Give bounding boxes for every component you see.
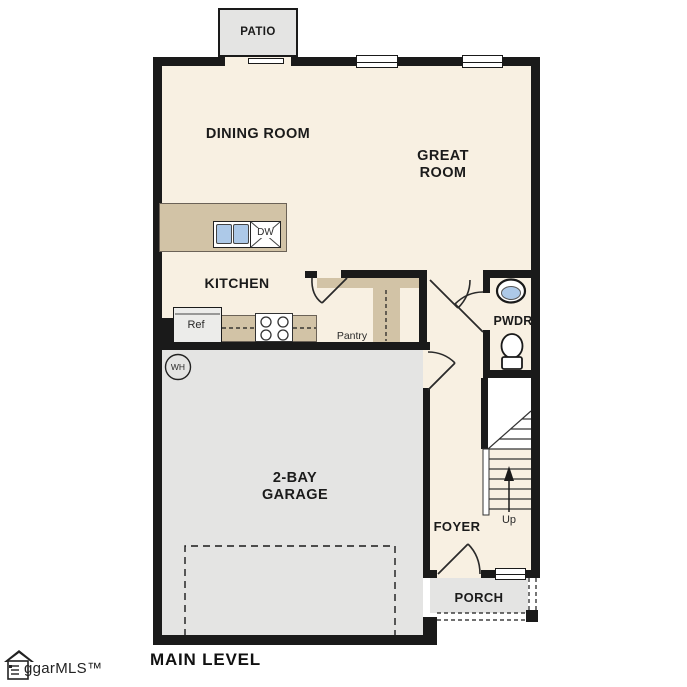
- range-box: [255, 313, 293, 342]
- wall-garage-porch-corner: [423, 617, 437, 643]
- room-label-kitchen: KITCHEN: [187, 275, 287, 292]
- wall-foyer-porch-b: [481, 570, 495, 578]
- plan-title: MAIN LEVEL: [150, 650, 261, 670]
- wall-foyer-porch-a: [423, 570, 437, 578]
- wall-garage-right: [423, 388, 430, 570]
- wall-foyer-porch-c: [526, 570, 540, 578]
- wall-pwdr-left-upper: [483, 278, 490, 293]
- fixture-label-wh: WH: [166, 363, 190, 372]
- window-dining: [356, 55, 398, 68]
- window-porch: [495, 568, 526, 580]
- patio-sliding-door: [248, 58, 284, 64]
- room-label-foyer: FOYER: [430, 519, 484, 534]
- wall-stairs-left: [481, 378, 488, 449]
- wall-left: [153, 57, 162, 645]
- wall-pantry-jamb: [305, 271, 317, 278]
- fixture-label-dw: DW: [252, 228, 279, 238]
- room-label-great: GREAT ROOM: [393, 148, 493, 182]
- wall-closet-right: [419, 278, 427, 342]
- window-mullion: [357, 62, 397, 63]
- room-label-pwdr: PWDR: [490, 314, 536, 329]
- wall-pantry-top: [341, 270, 427, 278]
- room-label-dining: DINING ROOM: [188, 126, 328, 143]
- wall-pwdr-bottom: [483, 370, 540, 378]
- wall-bottom-garage: [153, 635, 437, 645]
- floor-plan-canvas: PATIO DINING ROOM GREAT ROOM KITCHEN PWD…: [0, 0, 687, 687]
- pantry-shelf: [317, 278, 419, 288]
- room-label-patio: PATIO: [228, 26, 288, 40]
- sink-basin-left: [216, 224, 232, 244]
- porch-post: [526, 610, 538, 622]
- fixture-label-up: Up: [497, 515, 521, 526]
- room-label-porch: PORCH: [451, 590, 507, 605]
- room-label-pantry: Pantry: [330, 331, 374, 342]
- wall-pwdr-top: [483, 270, 540, 278]
- window-mullion: [496, 574, 525, 575]
- mls-watermark: ggarMLS™: [2, 648, 132, 686]
- window-mullion: [463, 62, 502, 63]
- room-label-garage: 2-BAY GARAGE: [245, 470, 345, 504]
- mls-watermark-text: ggarMLS™: [24, 660, 102, 677]
- coat-closet: [373, 288, 400, 342]
- wall-garage-top: [153, 342, 430, 350]
- window-great-room: [462, 55, 503, 68]
- fixture-label-ref: Ref: [180, 320, 212, 331]
- sink-basin-right: [233, 224, 249, 244]
- stairwell-void: [488, 378, 531, 449]
